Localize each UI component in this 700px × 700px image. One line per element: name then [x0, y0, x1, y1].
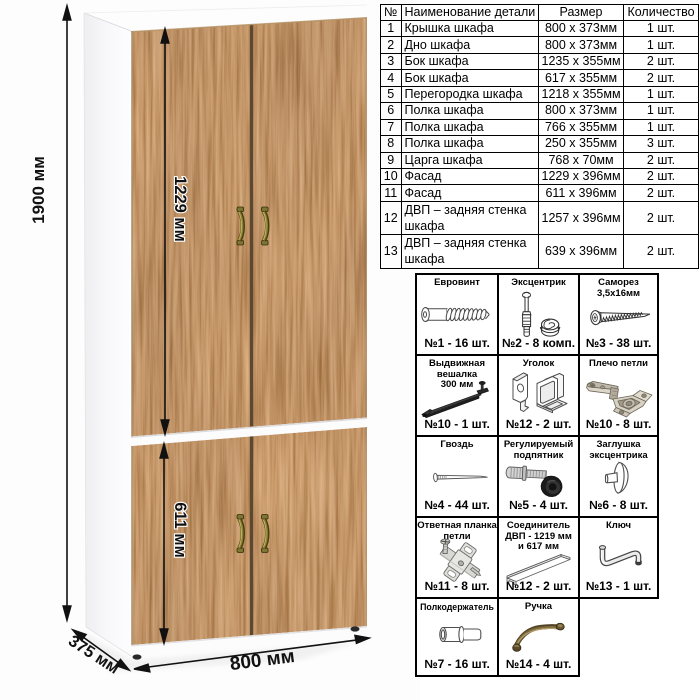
svg-text:1900 мм: 1900 мм [29, 156, 48, 224]
svg-text:611 мм: 611 мм [171, 502, 189, 558]
svg-text:1229 мм: 1229 мм [171, 176, 189, 242]
